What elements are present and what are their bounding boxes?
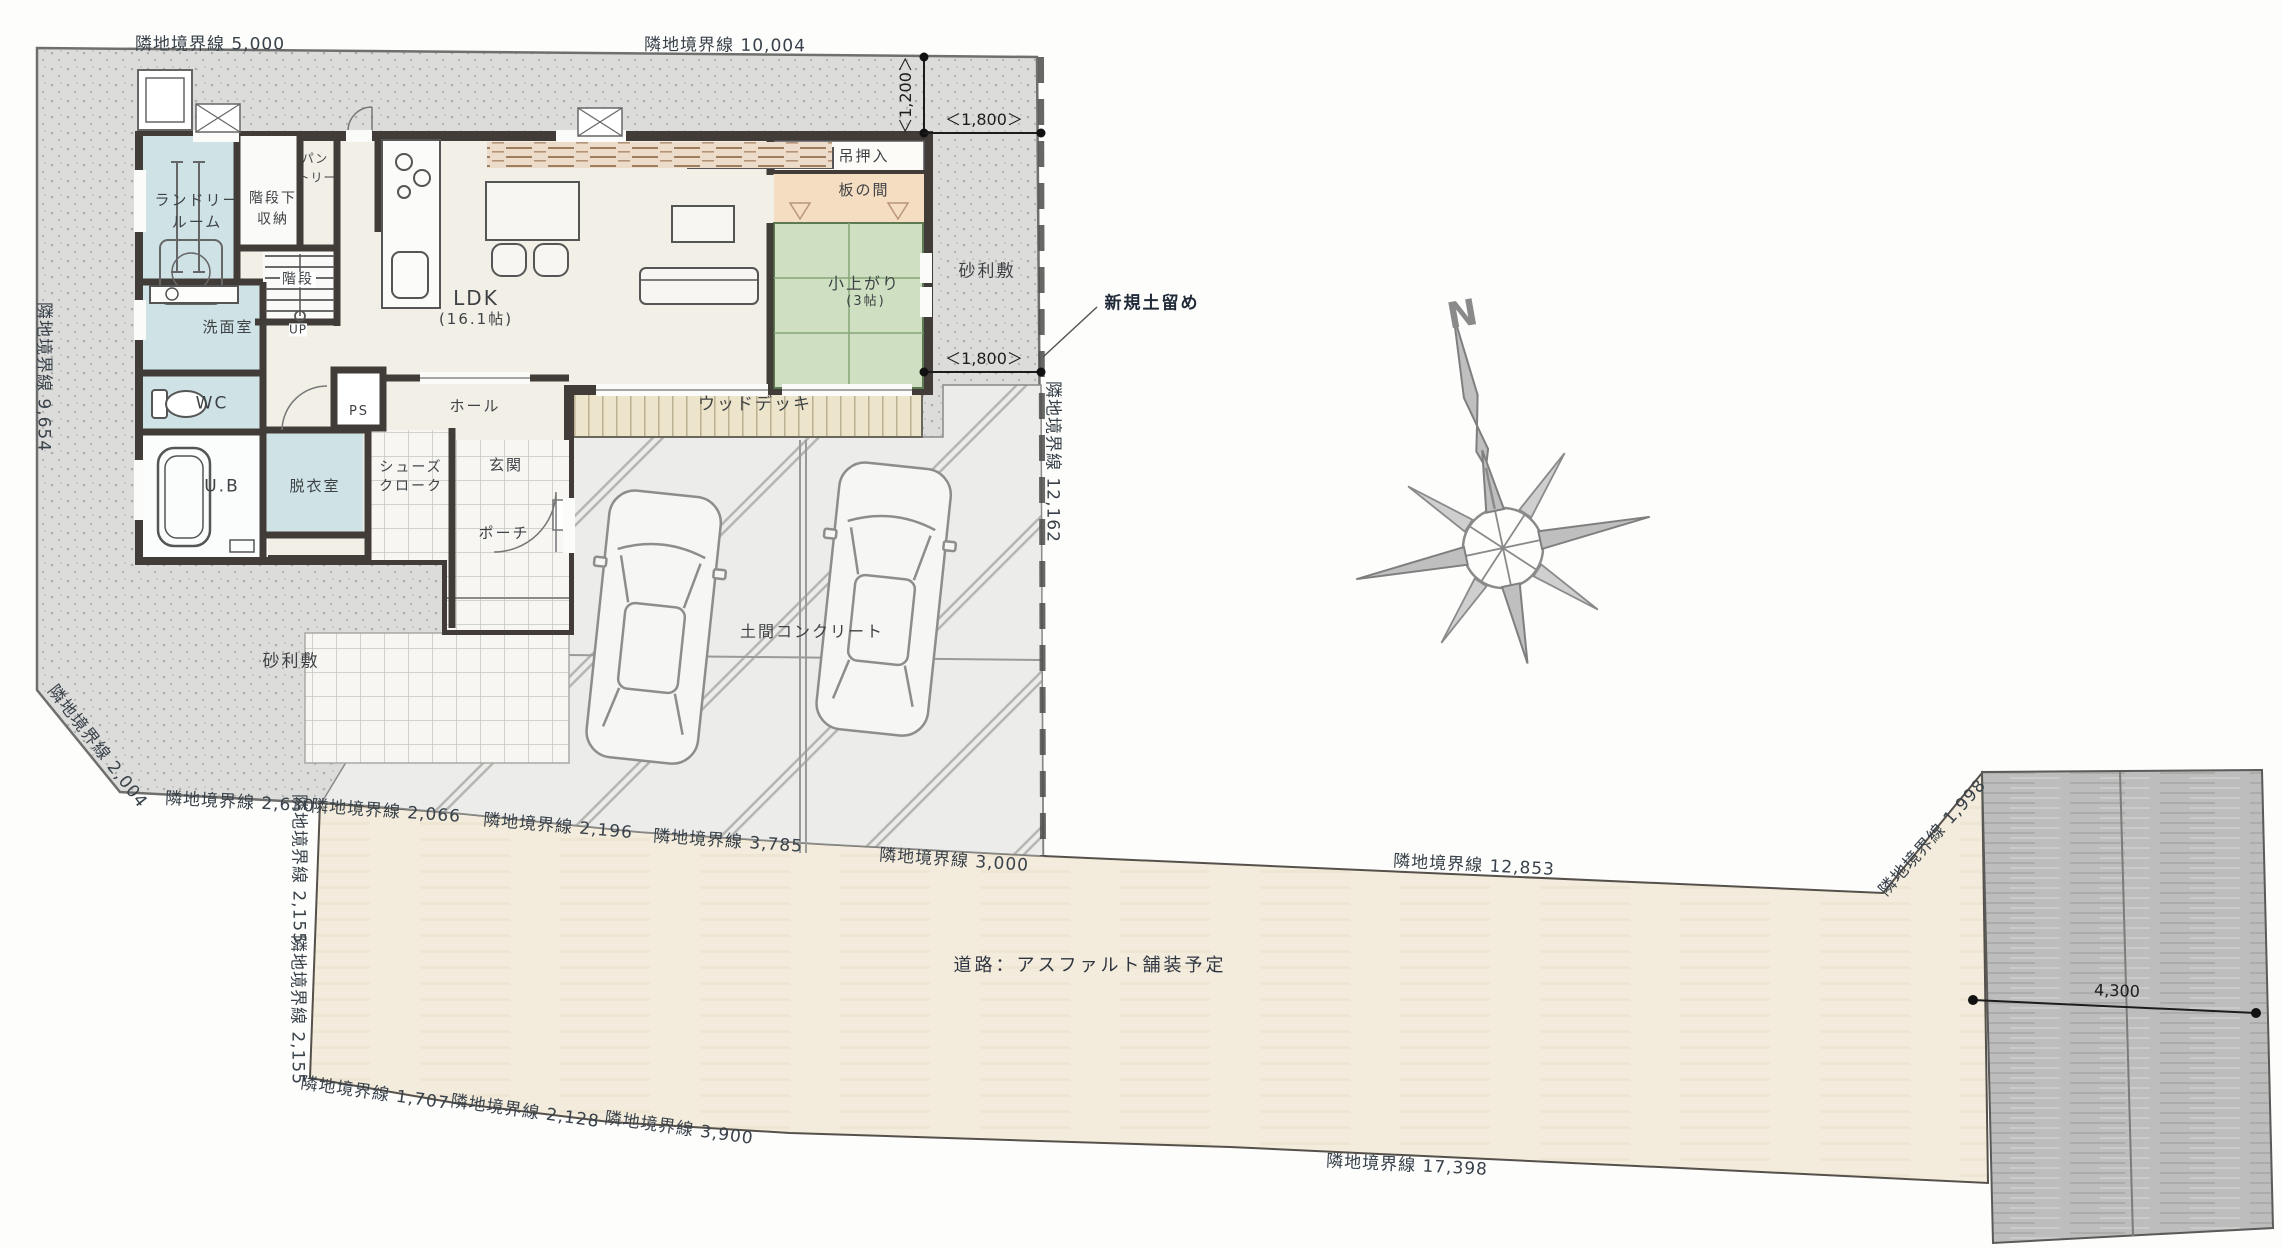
room-label-hall: ホール — [449, 398, 500, 415]
room-label-laundry-2: ルーム — [172, 214, 223, 231]
room-label-ldk: LDK — [453, 287, 499, 309]
site-plan: 隣地境界線 5,000 隣地境界線 10,004 隣地境界線 9,654 隣地境… — [0, 0, 2283, 1249]
room-label-stairs: 階段 — [280, 272, 316, 287]
room-label-shoe-cloak-1: シューズ — [379, 460, 442, 475]
feature-wood-wall — [487, 142, 832, 168]
room-label-entrance: 玄関 — [489, 457, 523, 474]
room-label-wood-floor-nook: 板の間 — [838, 182, 889, 199]
chair-1 — [492, 244, 526, 276]
room-label-laundry-1: ランドリー — [154, 192, 239, 209]
compass-north-label: N — [1444, 293, 1482, 337]
boundary-label-top-east: 隣地境界線 10,004 — [644, 36, 806, 56]
room-label-pipe-space: PS — [349, 405, 369, 419]
boundary-label-road-west-upper: 隣地境界線 2,155 — [289, 794, 308, 944]
kitchen-counter — [382, 140, 440, 308]
shoe-cloak-floor — [365, 430, 452, 560]
washroom-vanity — [150, 286, 238, 303]
dimension-east-offset-top: ＜1,800＞ — [945, 111, 1023, 129]
sofa — [640, 268, 758, 304]
dining-table — [486, 182, 579, 240]
room-label-storage-1: 階段下 — [249, 191, 297, 206]
room-label-porch: ポーチ — [478, 525, 529, 542]
pipe-space-box — [334, 370, 383, 428]
room-label-storage-2: 収納 — [257, 212, 289, 227]
room-label-bath: U.B — [204, 478, 240, 497]
road-label: 道路：アスファルト舗装予定 — [954, 956, 1227, 976]
compass-rose — [1307, 284, 1674, 695]
coffee-table — [672, 206, 734, 242]
room-label-hanging-closet: 吊押入 — [838, 148, 889, 165]
boundary-label-top-west: 隣地境界線 5,000 — [135, 36, 285, 55]
entrance-apron — [305, 633, 569, 763]
gravel-label-east: 砂利敷 — [959, 263, 1016, 282]
room-label-up: UP — [289, 323, 307, 336]
dimension-parking-width: 4,300 — [2094, 981, 2140, 1000]
dimension-north-offset: ＜1,200＞ — [897, 56, 915, 134]
retaining-wall-label: 新規土留め — [1105, 295, 1200, 314]
room-label-tatami-size: (3帖) — [846, 295, 885, 309]
room-label-pantry-1: パン — [302, 152, 329, 165]
room-label-ldk-size: (16.1帖) — [439, 311, 513, 328]
room-label-pantry-2: トリー — [297, 171, 336, 184]
dimension-east-offset-bottom: ＜1,800＞ — [945, 350, 1023, 368]
porch-floor — [447, 490, 569, 630]
doma-concrete-label: 土間コンクリート — [740, 623, 884, 641]
boundary-label-west: 隣地境界線 9,654 — [34, 302, 53, 452]
room-label-dressing: 脱衣室 — [289, 478, 340, 495]
chair-2 — [534, 244, 568, 276]
room-label-wc: WC — [196, 395, 229, 414]
room-label-washroom: 洗面室 — [202, 319, 253, 336]
room-label-shoe-cloak-2: クローク — [379, 479, 443, 494]
boundary-label-east-of-house: 隣地境界線 12,162 — [1043, 381, 1062, 543]
room-label-tatami: 小上がり — [828, 275, 900, 293]
gravel-label-northwest: 砂利敷 — [263, 653, 320, 672]
site-plan-drawing — [0, 0, 2283, 1249]
boundary-label-road-west-lower: 隣地境界線 2,155 — [288, 935, 307, 1085]
retaining-wall-leader — [1043, 307, 1097, 357]
room-label-wood-deck: ウッドデッキ — [698, 396, 812, 415]
